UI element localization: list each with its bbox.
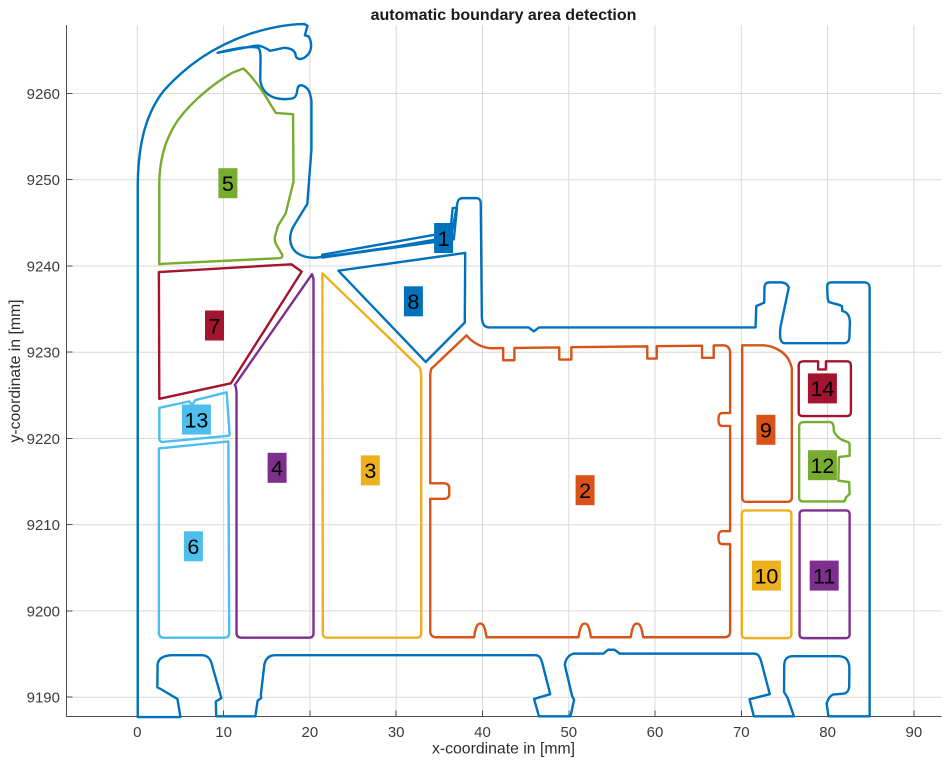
svg-text:50: 50 <box>560 724 577 741</box>
svg-text:20: 20 <box>302 724 319 741</box>
svg-text:60: 60 <box>647 724 664 741</box>
svg-text:9200: 9200 <box>27 603 60 620</box>
svg-text:9: 9 <box>760 419 772 443</box>
svg-text:x-coordinate in [mm]: x-coordinate in [mm] <box>432 741 575 758</box>
svg-text:40: 40 <box>474 724 491 741</box>
svg-text:11: 11 <box>813 564 835 588</box>
svg-text:10: 10 <box>754 564 778 588</box>
svg-text:12: 12 <box>810 454 834 478</box>
svg-text:9230: 9230 <box>27 345 60 362</box>
svg-text:9240: 9240 <box>27 259 60 276</box>
svg-text:9210: 9210 <box>27 517 60 534</box>
svg-text:9250: 9250 <box>27 172 60 189</box>
svg-text:13: 13 <box>184 408 208 432</box>
svg-text:4: 4 <box>271 457 283 481</box>
svg-text:80: 80 <box>819 724 836 741</box>
svg-text:30: 30 <box>388 724 405 741</box>
svg-text:7: 7 <box>209 314 221 338</box>
svg-text:automatic boundary area detect: automatic boundary area detection <box>371 7 637 24</box>
svg-text:9190: 9190 <box>27 690 60 707</box>
svg-text:2: 2 <box>579 479 591 503</box>
svg-text:y-coordinate in [mm]: y-coordinate in [mm] <box>7 299 24 442</box>
svg-text:1: 1 <box>438 227 450 251</box>
svg-text:3: 3 <box>364 459 376 483</box>
svg-text:70: 70 <box>733 724 750 741</box>
svg-text:14: 14 <box>810 377 834 401</box>
svg-text:0: 0 <box>133 724 141 741</box>
svg-text:90: 90 <box>906 724 923 741</box>
svg-text:9260: 9260 <box>27 86 60 103</box>
svg-text:6: 6 <box>187 535 199 559</box>
svg-text:10: 10 <box>215 724 232 741</box>
svg-text:9220: 9220 <box>27 431 60 448</box>
svg-text:5: 5 <box>222 172 234 196</box>
svg-text:8: 8 <box>407 290 419 314</box>
